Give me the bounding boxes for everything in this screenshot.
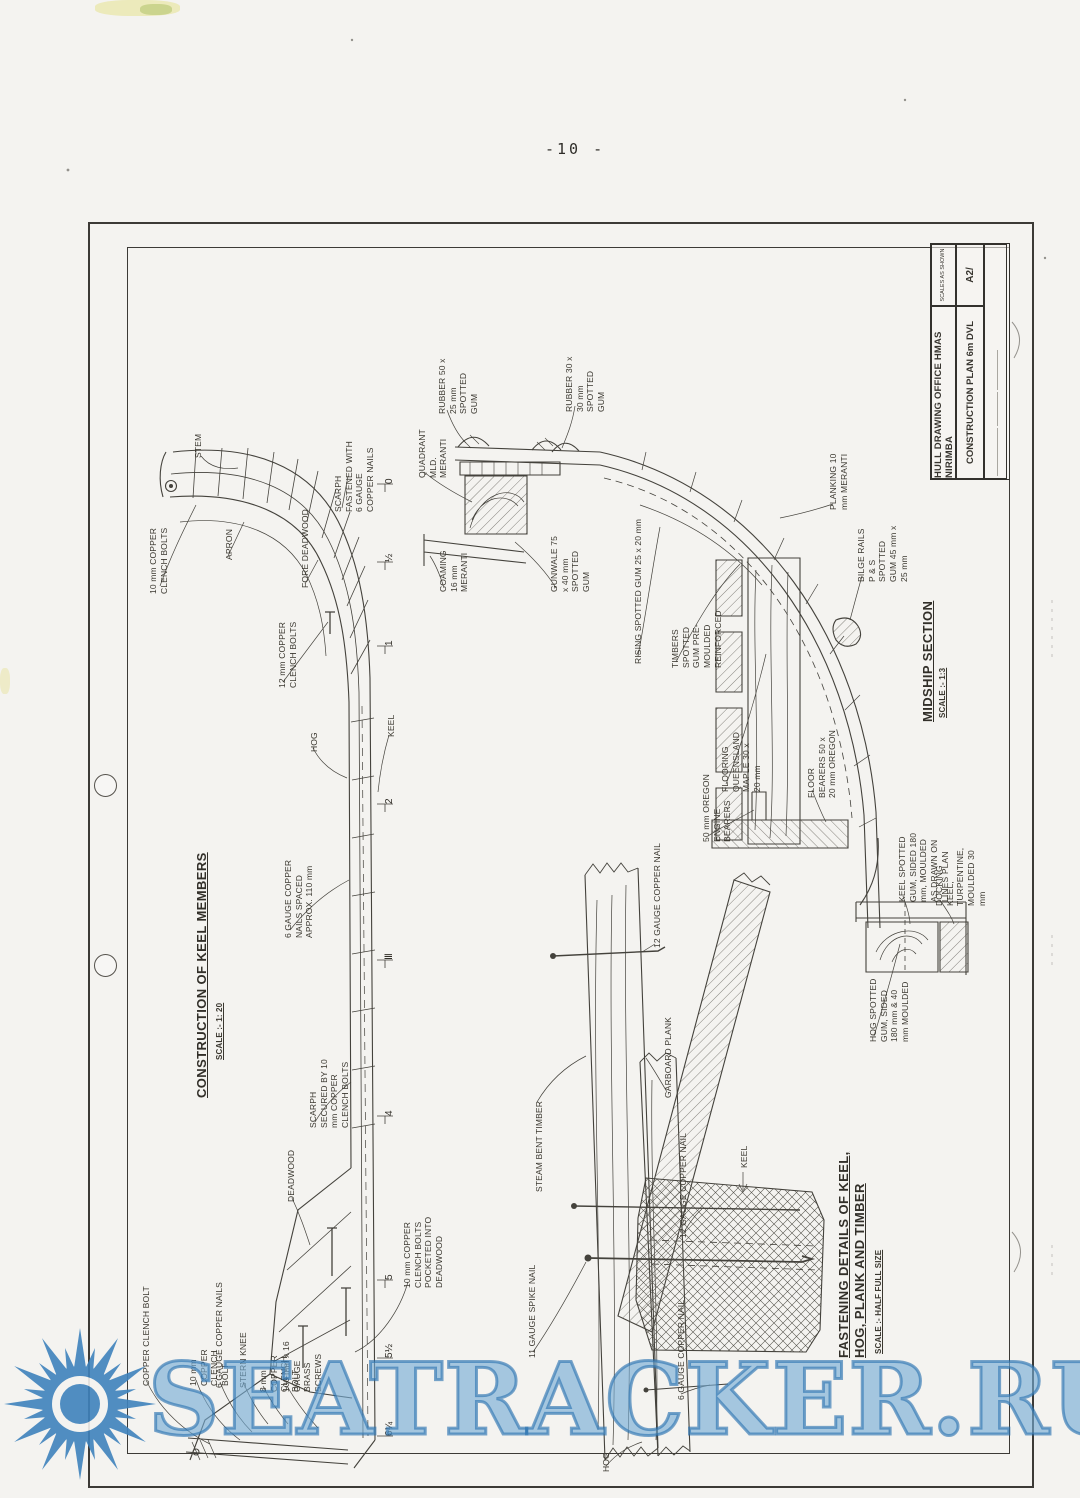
title-block-admin-cells	[984, 244, 1007, 479]
label-steam-bent-timber: STEAM BENT TIMBER	[534, 1101, 545, 1192]
illegible-scribble	[994, 350, 998, 390]
label-nail-12b: 12 GAUGE COPPER NAIL	[678, 1133, 689, 1238]
station-mark: 0	[384, 478, 395, 484]
station-mark: 4	[384, 1110, 395, 1116]
scan-marks	[67, 39, 1052, 1275]
label-bolts-pocketed: 10 mm COPPER CLENCH BOLTS POCKETED INTO …	[402, 1216, 445, 1288]
station-mark: ½	[384, 554, 395, 563]
label-rubber-30: RUBBER 30 x 30 mm SPOTTED GUM	[564, 354, 607, 412]
label-engine-bearers: 50 mm OREGON ENGINE BEARERS	[701, 772, 733, 842]
label-bilge-rails: BILGE RAILS P & S SPOTTED GUM 45 mm x 25…	[856, 522, 909, 582]
label-apron: APRON	[224, 529, 235, 560]
keel-profile-drawing	[146, 448, 408, 1468]
label-hog: HOG	[309, 732, 320, 752]
station-mark: 5	[384, 1274, 395, 1280]
label-coaming: COAMING 16 mm MERANTI	[438, 540, 470, 592]
fastening-section-scale: SCALE :- HALF FULL SIZE	[874, 1250, 884, 1354]
station-mark: 1	[384, 640, 395, 646]
label-nails-spaced: 6 GAUGE COPPER NAILS SPACED APPROX. 110 …	[283, 850, 315, 938]
midship-section-scale: SCALE :- 1:3	[938, 668, 948, 718]
scanned-drawing-page: -10 -	[0, 0, 1080, 1498]
label-garboard-plank: GARBOARD PLANK	[663, 1017, 674, 1098]
title-block: HULL DRAWING OFFICE HMAS NIRIMBA SCALES …	[930, 243, 1010, 480]
drawing-lineart	[0, 0, 1080, 1498]
label-rubber-50: RUBBER 50 x 25 mm SPOTTED GUM	[437, 358, 480, 414]
label-clench-bolts-10: 10 mm COPPER CLENCH BOLTS	[148, 526, 169, 594]
label-keel-arrow: KEEL	[739, 1146, 750, 1168]
fastening-section-title: FASTENING DETAILS OF KEEL, HOG, PLANK AN…	[836, 1146, 869, 1358]
label-keel: KEEL	[386, 715, 397, 737]
label-timbers: TIMBERS SPOTTED GUM PRE-MOULDED REINFORC…	[670, 606, 723, 668]
label-docking-keel: DOCKING KEEL, TURPENTINE, MOULDED 30 mm	[934, 846, 987, 906]
label-gunwale: GUNWALE 75 x 40 mm SPOTTED GUM	[549, 534, 592, 592]
label-fore-deadwood: FORE DEADWOOD	[300, 509, 311, 588]
title-block-scales: SCALES AS SHOWN	[931, 244, 956, 306]
title-block-office: HULL DRAWING OFFICE HMAS NIRIMBA	[931, 306, 956, 479]
midship-section-title: MIDSHIP SECTION	[920, 601, 936, 722]
label-deadwood: DEADWOOD	[286, 1150, 297, 1202]
label-hog-spotted-gum: HOG SPOTTED GUM, SIDED 180 mm & 40 mm MO…	[868, 974, 911, 1042]
keel-section-title: CONSTRUCTION OF KEEL MEMBERS	[194, 852, 210, 1098]
label-scarph-secured: SCARPH SECURED BY 10 mm COPPER CLENCH BO…	[308, 1048, 351, 1128]
label-floor-bearers: FLOOR BEARERS 50 x 20 mm OREGON	[806, 726, 838, 798]
label-clench-bolts-12: 12 mm COPPER CLENCH BOLTS	[277, 608, 298, 688]
title-block-plan-title: CONSTRUCTION PLAN 6m DVL	[956, 306, 984, 479]
seatracker-logo	[0, 1322, 170, 1492]
station-mark: Ⅲ	[384, 953, 395, 960]
illegible-scribble	[994, 428, 998, 476]
station-mark: 2	[384, 798, 395, 804]
midship-section-drawing	[424, 406, 968, 1036]
label-scarph-fastened: SCARPH FASTENED WITH 6 GAUGE COPPER NAIL…	[333, 434, 376, 512]
label-stem: STEM	[193, 434, 204, 458]
title-block-sheet-number: A2/	[956, 244, 984, 306]
keel-section-scale: SCALE :- 1: 20	[215, 1003, 225, 1060]
label-nail-12a: 12 GAUGE COPPER NAIL	[652, 843, 663, 948]
illegible-scribble	[994, 392, 998, 426]
watermark-text: SEATRACKER.RU	[148, 1342, 1080, 1458]
label-quadrant: QUADRANT MLD. MERANTI	[417, 420, 449, 478]
label-rising: RISING SPOTTED GUM 25 x 20 mm	[633, 519, 644, 664]
label-planking: PLANKING 10 mm MERANTI	[828, 450, 849, 510]
